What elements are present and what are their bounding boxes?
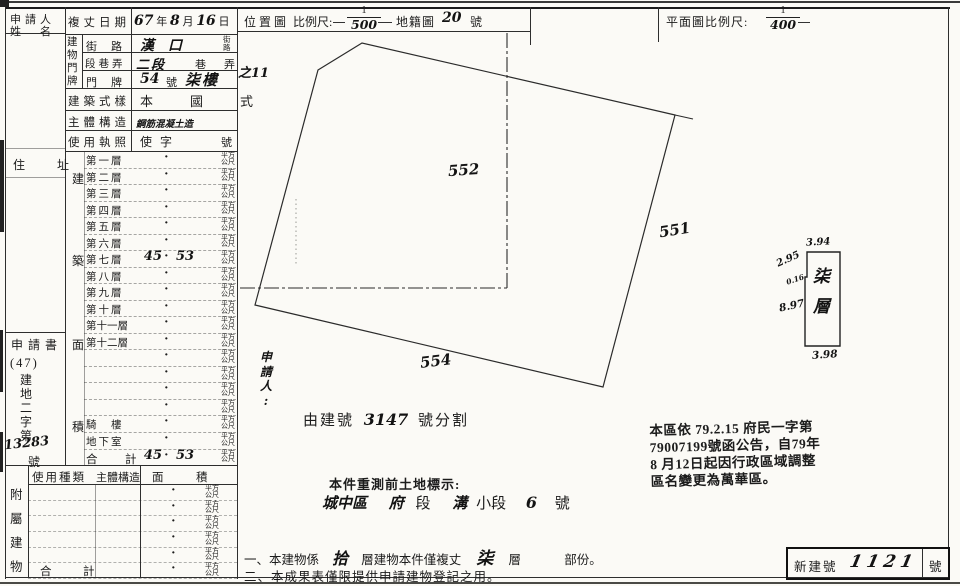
floor-row-label: 第二層 [86,170,124,185]
applicant-name-label2: 姓 名 [10,23,55,39]
section-alley: 弄 [224,56,235,72]
unit-label: 平方公尺 [221,185,235,199]
row-dot: · [164,348,169,364]
application-label: 申請書 [11,336,62,353]
parcel-boundary [255,43,675,387]
unit-label: 平方公尺 [221,317,235,331]
unit-label: 平方公尺 [221,416,235,430]
split-number: 3147 [364,410,409,429]
row-dot: · [164,414,169,430]
floor-row-label: 第九層 [86,285,124,300]
char: 建 [10,531,23,555]
scale-numerator: 1 [776,6,789,17]
month-value: 8 [170,13,180,29]
address-label: 住 址 [13,156,79,173]
unit-label: 平方公尺 [221,235,235,249]
unit-label: 平方公尺 [221,284,235,298]
floor-row: 第三層·平方公尺 [84,184,236,202]
floor-row-label: 第十二層 [86,335,128,350]
row-dot: · [164,167,169,183]
split-suffix: 號分割 [418,413,469,429]
dim-top: 3.94 [806,236,831,248]
row-dot: · [164,150,169,166]
floor-row: ·平方公尺 [84,366,236,384]
row-dot: · [164,233,169,249]
row-dot: · [171,483,176,499]
row-dot: · [164,183,169,199]
row-dot: · [164,332,169,348]
day-unit: 日 [218,16,229,28]
row-dot: · [171,530,176,546]
floor-row-label: 第六層 [86,236,124,251]
unit-label: 平方公尺 [205,532,219,546]
license-value: 使字 [140,133,180,150]
grid-line [5,148,65,149]
char: 路 [223,43,231,52]
unit-label: 平方公尺 [221,367,235,381]
survey-date-label: 複丈日期 [68,14,128,30]
area-vchar: 面 [72,336,84,353]
subsection-name: 溝 [452,494,467,512]
floor-value: 柒樓 [185,69,219,90]
survey-form-sheet: 申請人 姓 名 住 址 申請書 (47) 建 地 二 字 第 13283 號 複… [0,0,960,586]
char: 門 [67,62,78,75]
annex-row: ·平方公尺 [28,500,237,517]
number-label: 門牌 [86,74,136,90]
application-no-suffix: 號 [28,453,40,470]
new-building-no-value: 1121 [848,552,920,572]
char: 物 [67,49,78,62]
survey-date-value: 67 年 8 月 16 日 [134,13,229,29]
annex-header-usage: 使用種類 [32,469,86,485]
char: 建 [67,36,78,49]
floor-row: 第一層·平方公尺 [84,151,236,169]
floor-row: 第五層·平方公尺 [84,217,236,235]
grid-line [65,110,237,111]
area-value-int: 45 [126,249,162,264]
application-no-vertical: 建 地 二 字 第 [20,373,32,443]
floor-row: 第二層·平方公尺 [84,168,236,186]
street-label: 街路 [86,38,136,54]
unit-label: 平方公尺 [221,202,235,216]
number-unit: 號 [166,74,177,90]
structure-value: 鋼筋混凝土造 [136,116,193,130]
plan-scale-fraction: 1 400 [766,6,800,31]
char: 附 [10,483,23,507]
row-dot: · [171,561,176,577]
row-dot: · [171,499,176,515]
area-value-dec: 53 [176,249,212,264]
application-number: 13283 [3,434,50,454]
char: 人 [260,379,272,394]
map-applicant-label: 申 請 人 : [260,350,272,408]
unit-label: 平方公尺 [221,218,235,232]
row-dot: · [171,514,176,530]
area-value-dec: 53 [176,448,212,463]
row-dot: · [164,266,169,282]
stamp-line: 區名變更為萬華區。 [650,469,821,490]
number-value: 54 [140,71,159,87]
floors-table: 第一層·平方公尺第二層·平方公尺第三層·平方公尺第四層·平方公尺第五層·平方公尺… [84,151,236,465]
pre-measure-title: 本件重測前土地標示: [329,474,460,493]
row-dot: · [164,448,169,464]
annex-row: ·平方公尺 [28,484,237,501]
plan-floor-label: 柒 層 [813,262,830,322]
style-label: 建築式樣 [68,93,130,109]
day-value: 16 [196,13,215,29]
floor-row-label: 第八層 [86,269,124,284]
unit-label: 平方公尺 [205,563,219,577]
row-dot: · [171,546,176,562]
annex-header-structure: 主體構造 [96,469,140,485]
floor-row-label: 第十層 [86,302,124,317]
area-vchar: 建 [72,170,84,187]
new-building-no-label: 新建號 [794,556,838,575]
annex-row: 合 計·平方公尺 [28,562,237,579]
unit-label: 平方公尺 [221,450,235,464]
char: 地 [20,387,32,401]
area-vchar: 積 [72,418,84,435]
row-dot: · [164,216,169,232]
corner-tick [675,115,693,119]
subsection-unit: 小段 [476,496,506,512]
unit-label: 平方公尺 [205,516,219,530]
note-text: 一、本建物係 [244,553,319,567]
annex-row: ·平方公尺 [28,547,237,564]
char: 層 [813,292,830,322]
char: 請 [260,365,272,380]
section-name: 府 [389,494,404,512]
unit-label: 平方公尺 [221,301,235,315]
annex-row-label: 合 計 [40,563,105,579]
unit-label: 平方公尺 [221,169,235,183]
floor-row: 第七層·平方公尺4553 [84,250,236,268]
row-dot: · [164,365,169,381]
parcel-number-552: 552 [447,160,479,180]
license-label: 使用執照 [68,134,130,150]
row-dot: · [164,299,169,315]
row-dot: · [164,282,169,298]
split-note: 由建號 3147 號分割 [303,409,469,430]
row-dot: · [164,315,169,331]
floor-row-label: 第七層 [86,252,124,267]
floor-row: 第八層·平方公尺 [84,267,236,285]
grid-line [5,177,65,178]
year-value: 67 [134,13,153,29]
unit-label: 平方公尺 [205,485,219,499]
scale-dash [798,22,810,23]
annex-table: ·平方公尺·平方公尺·平方公尺·平方公尺·平方公尺合 計·平方公尺 [28,484,237,578]
district-change-stamp: 本區依 79.2.15 府民一字第 79007199號函公告，自79年 8 月1… [649,418,821,490]
lot-number: 6 [526,493,537,512]
floor-row-label: 第四層 [86,203,124,218]
new-building-no-box: 新建號 1121 號 [786,547,950,580]
cadastral-map-drawing [237,7,717,427]
unit-label: 平方公尺 [221,268,235,282]
street-suffix: 街 路 [223,36,231,51]
floor-row: 第四層·平方公尺 [84,201,236,219]
row-dot: · [164,398,169,414]
row-dot: · [164,381,169,397]
floor-row: 第九層·平方公尺 [84,283,236,301]
application-paren: (47) [10,356,39,371]
year-unit: 年 [156,16,167,28]
section-label: 段巷弄 [85,56,126,71]
scale-denominator: 400 [766,17,800,32]
scan-artifact [0,330,3,392]
grid-line [922,549,923,578]
unit-label: 平方公尺 [221,152,235,166]
label-text: 複丈日期 [68,14,130,30]
grid-line [65,130,237,131]
border-left [5,7,6,579]
char: 建 [20,373,32,387]
parcel-number-554: 554 [419,350,452,372]
char: 字 [20,415,32,429]
unit-label: 平方公尺 [221,251,235,265]
note-text: 部份。 [564,553,602,567]
floor-row: ·平方公尺 [84,399,236,417]
lot-unit: 號 [555,496,570,512]
unit-label: 平方公尺 [205,501,219,515]
note-text: 層建物本件僅複丈 [361,553,461,567]
street-value: 漢口 [140,35,196,55]
row-dot: · [164,200,169,216]
floor-row: ·平方公尺 [84,349,236,367]
area-vchar: 築 [72,252,84,269]
row-dot: · [164,249,169,265]
scan-artifact [0,0,9,7]
scan-artifact [0,1,960,3]
char: 屬 [10,507,23,531]
grid-line [65,7,66,466]
floor-row-label: 第三層 [86,186,124,201]
new-building-no-unit: 號 [929,556,942,575]
floor-row: 騎 樓·平方公尺 [84,415,236,433]
border-right [948,7,949,579]
structure-label: 主體構造 [68,114,130,130]
char: 二 [20,401,32,415]
doorplate-vertical-label: 建 物 門 牌 [67,36,78,88]
area-value-int: 45 [126,448,162,463]
dim-bottom: 3.98 [812,348,838,362]
section-unit: 段 [416,496,431,512]
month-unit: 月 [182,16,193,28]
annex-row: ·平方公尺 [28,515,237,532]
annex-vertical-label: 附 屬 建 物 [10,483,23,579]
split-prefix: 由建號 [303,413,354,429]
scan-artifact [0,140,4,232]
floor-row: 第十層·平方公尺 [84,300,236,318]
char: 物 [10,555,23,579]
note-text: 層 [509,553,522,567]
grid-line [5,332,65,333]
unit-label: 平方公尺 [221,400,235,414]
floor-row-label: 地下室 [86,434,124,449]
unit-label: 平方公尺 [221,334,235,348]
grid-line [82,34,83,88]
annex-row: ·平方公尺 [28,531,237,548]
char: 柒 [813,262,830,292]
floor-row-label: 第五層 [86,219,124,234]
note-2: 二、本成果表僅限提供申請建物登記之用。 [244,566,501,585]
floor-row: 合 計·平方公尺4553 [84,449,236,467]
pre-measure-value: 城中區 府 段 溝 小段 6 號 [322,492,570,513]
floor-row-label: 騎 樓 [86,417,124,432]
floor-row: 第十一層·平方公尺 [84,316,236,334]
floor-row-label: 第十一層 [86,318,128,333]
district-name: 城中區 [322,494,367,512]
unit-label: 平方公尺 [205,548,219,562]
annex-header-area1: 面 [152,469,164,485]
unit-label: 平方公尺 [221,433,235,447]
row-dot: · [164,431,169,447]
annex-header-area2: 積 [196,469,208,485]
license-unit: 號 [221,134,232,150]
unit-label: 平方公尺 [221,383,235,397]
floor-row: ·平方公尺 [84,382,236,400]
char: 申 [260,350,272,365]
floor-row: 第十二層·平方公尺 [84,333,236,351]
char: : [264,394,268,409]
char: 牌 [67,75,78,88]
unit-label: 平方公尺 [221,350,235,364]
floor-row-label: 第一層 [86,153,124,168]
